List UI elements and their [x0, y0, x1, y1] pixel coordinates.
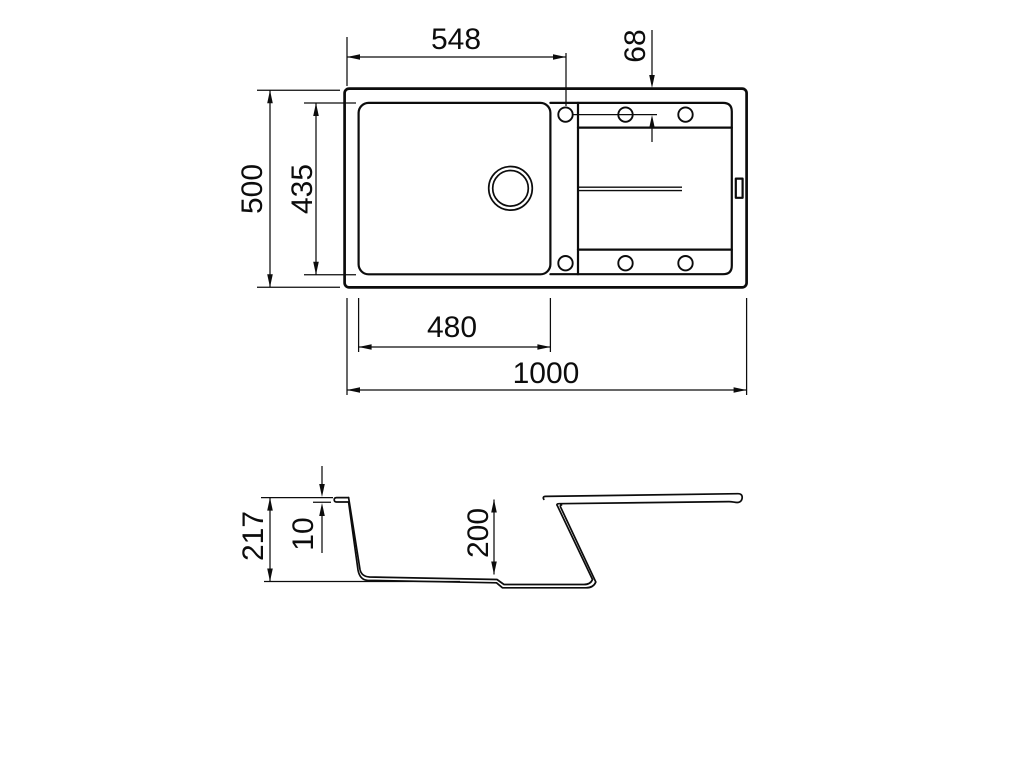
- dim-label-500: 500: [236, 164, 269, 214]
- arrowhead-down: [267, 274, 273, 287]
- tap-hole: [678, 256, 692, 270]
- arrowhead-right: [734, 387, 747, 393]
- arrowhead-down: [649, 75, 655, 88]
- dim-label-435: 435: [286, 164, 319, 214]
- arrowhead-up: [649, 115, 655, 128]
- tap-hole: [558, 256, 572, 270]
- arrowhead-up: [267, 90, 273, 103]
- drain-hole-outer: [489, 167, 533, 211]
- dim-label-68: 68: [619, 29, 652, 62]
- dim-label-217: 217: [237, 511, 270, 561]
- arrowhead-right: [553, 54, 566, 60]
- dim-cutout-width-548: 548: [347, 23, 566, 106]
- side-section-view: [264, 494, 742, 588]
- bowl-and-drainboard-inner-surface: [349, 494, 743, 585]
- drain-hole-inner: [493, 171, 529, 207]
- arrowhead-left: [359, 344, 372, 350]
- arrowhead-up: [313, 103, 319, 116]
- arrowhead-left: [347, 387, 360, 393]
- arrowhead-left: [347, 54, 360, 60]
- dim-label-1000: 1000: [513, 357, 580, 390]
- dim-rim-thickness-10: 10: [287, 466, 331, 553]
- arrowhead-down: [491, 562, 497, 575]
- top-plan-view: [345, 89, 747, 288]
- dim-bowl-inner-depth-200: 200: [462, 500, 497, 575]
- dim-label-480: 480: [427, 311, 477, 344]
- dim-hole-offset-68: 68: [572, 29, 657, 142]
- arrowhead-down: [313, 262, 319, 275]
- tap-hole: [678, 107, 692, 121]
- tap-hole: [618, 256, 632, 270]
- dim-label-10: 10: [287, 517, 320, 550]
- arrowhead-down: [267, 569, 273, 582]
- arrowhead-down: [319, 484, 325, 497]
- dim-bowl-width-480: 480: [359, 298, 551, 352]
- arrowhead-right: [537, 344, 550, 350]
- sink-technical-drawing: 548 68 500 435 480: [0, 0, 1024, 768]
- tap-hole: [558, 107, 572, 121]
- dim-label-200: 200: [462, 508, 495, 558]
- rim-left-edge: [334, 498, 348, 502]
- arrowhead-up: [319, 503, 325, 516]
- sink-outer-rim: [345, 89, 747, 288]
- main-bowl-outline: [359, 103, 551, 274]
- dim-label-548: 548: [431, 23, 481, 56]
- drawing-canvas: 548 68 500 435 480: [0, 0, 1024, 768]
- overflow-slot: [736, 179, 743, 198]
- arrowhead-up: [267, 498, 273, 511]
